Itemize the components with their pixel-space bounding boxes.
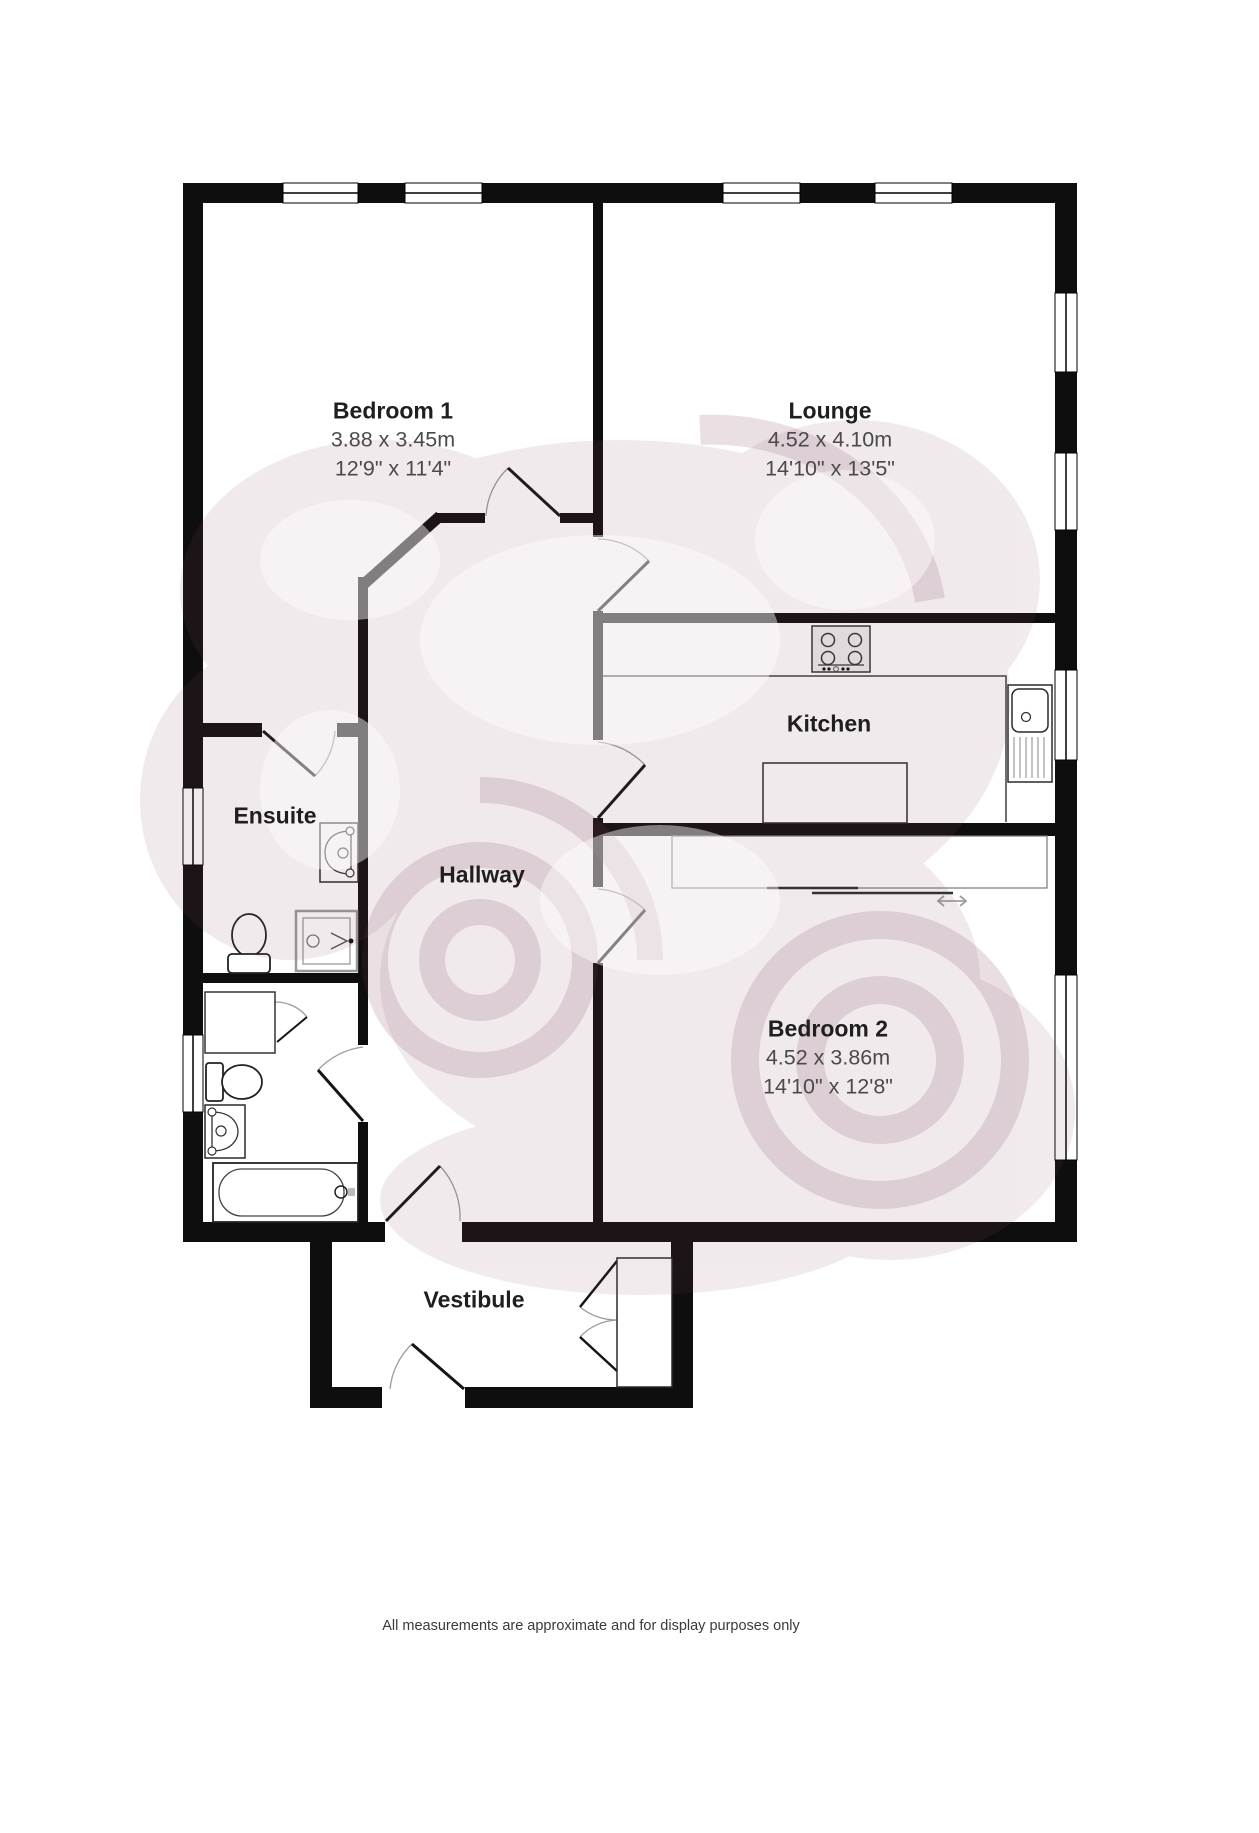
door-arc-bedroom2 bbox=[598, 889, 645, 910]
wall-vestibule-left bbox=[310, 1242, 332, 1408]
sliding-arrow-icon bbox=[938, 896, 966, 906]
room-dimensions-metric: 3.88 x 3.45m bbox=[331, 426, 455, 455]
closet-icon bbox=[617, 1258, 672, 1387]
wall-bottom-left bbox=[203, 1222, 385, 1242]
room-label-lounge: Lounge 4.52 x 4.10m 14'10" x 13'5" bbox=[765, 397, 895, 484]
wall-kitchen-bedroom2 bbox=[593, 823, 1055, 836]
door-leaf-ensuite bbox=[263, 731, 315, 776]
door-leaf-bathroom bbox=[318, 1070, 363, 1121]
room-label-hallway: Hallway bbox=[439, 861, 525, 890]
wall-ensuite-bathroom bbox=[203, 973, 368, 983]
kitchen-sink-icon bbox=[1008, 685, 1052, 782]
wall-bed1-bottom-a bbox=[437, 513, 485, 523]
door-arc-lounge bbox=[598, 539, 649, 561]
door-arc-vestibule bbox=[440, 1166, 460, 1221]
room-label-bedroom-2: Bedroom 2 4.52 x 3.86m 14'10" x 12'8" bbox=[763, 1015, 893, 1102]
door-leaf-closet-bottom bbox=[580, 1337, 617, 1371]
wall-bathroom-right bbox=[358, 1122, 368, 1222]
wall-ensuite-top-a bbox=[203, 723, 262, 737]
bathroom-toilet-icon bbox=[206, 1063, 262, 1101]
windows bbox=[183, 183, 1077, 1160]
room-dimensions-metric: 4.52 x 4.10m bbox=[765, 426, 895, 455]
wall-lounge-kitchen bbox=[593, 613, 1055, 623]
airing-cupboard bbox=[205, 992, 275, 1053]
bath-icon bbox=[213, 1163, 358, 1222]
wall-bottom-right bbox=[462, 1222, 1077, 1242]
door-leaf-closet-top bbox=[580, 1261, 617, 1307]
door-leaf-front-door bbox=[412, 1344, 464, 1389]
wall-bed1-bottom-b bbox=[560, 513, 593, 523]
door-leaf-kitchen bbox=[598, 765, 645, 818]
room-name: Lounge bbox=[765, 397, 895, 426]
room-label-ensuite: Ensuite bbox=[233, 802, 316, 831]
room-name: Hallway bbox=[439, 861, 525, 890]
room-dimensions-metric: 4.52 x 3.86m bbox=[763, 1044, 893, 1073]
door-leaf-bedroom1 bbox=[508, 468, 560, 516]
room-dimensions-imperial: 14'10" x 13'5" bbox=[765, 455, 895, 484]
ensuite-basin-icon bbox=[320, 823, 358, 882]
room-dimensions-imperial: 12'9" x 11'4" bbox=[331, 455, 455, 484]
room-name: Bedroom 2 bbox=[763, 1015, 893, 1044]
room-name: Ensuite bbox=[233, 802, 316, 831]
wall-ensuite-top-b bbox=[337, 723, 358, 737]
wall-spine-1 bbox=[593, 203, 603, 537]
disclaimer-text: All measurements are approximate and for… bbox=[382, 1618, 800, 1634]
room-name: Kitchen bbox=[787, 710, 871, 739]
wall-spine-2 bbox=[593, 611, 603, 740]
walls bbox=[183, 183, 1077, 1408]
wall-spine-4 bbox=[593, 963, 603, 1222]
wall-vestibule-bottom-b bbox=[465, 1387, 693, 1408]
door-arc-front-door bbox=[390, 1344, 412, 1389]
wall-vestibule-bottom-a bbox=[310, 1387, 382, 1408]
room-name: Bedroom 1 bbox=[331, 397, 455, 426]
room-label-kitchen: Kitchen bbox=[787, 710, 871, 739]
door-arc-kitchen bbox=[598, 742, 645, 765]
wall-vestibule-right bbox=[671, 1235, 693, 1408]
kitchen-island-unit bbox=[763, 763, 907, 823]
door-leaf-vestibule bbox=[386, 1166, 440, 1221]
wardrobe-icon bbox=[672, 836, 1047, 906]
floorplan-page: Bedroom 1 3.88 x 3.45m 12'9" x 11'4" Lou… bbox=[0, 0, 1259, 1833]
room-label-vestibule: Vestibule bbox=[424, 1286, 525, 1315]
door-leaf-lounge bbox=[598, 561, 649, 611]
bathroom-basin-icon bbox=[205, 1105, 245, 1158]
wall-bed1-diagonal bbox=[364, 516, 440, 584]
room-name: Vestibule bbox=[424, 1286, 525, 1315]
door-arc-ensuite bbox=[315, 731, 335, 776]
door-arc-bathroom bbox=[318, 1047, 363, 1070]
door-arc-cupboard bbox=[275, 1002, 307, 1017]
room-dimensions-imperial: 14'10" x 12'8" bbox=[763, 1073, 893, 1102]
floorplan-drawing bbox=[0, 0, 1259, 1833]
hob-icon bbox=[812, 626, 870, 672]
door-arc-bedroom1 bbox=[486, 468, 508, 516]
ensuite-toilet-icon bbox=[228, 914, 270, 973]
door-arc-closet-bottom bbox=[580, 1320, 617, 1337]
room-label-bedroom-1: Bedroom 1 3.88 x 3.45m 12'9" x 11'4" bbox=[331, 397, 455, 484]
shower-icon bbox=[296, 911, 357, 971]
door-leaf-bedroom2 bbox=[598, 910, 645, 963]
door-arc-closet-top bbox=[580, 1307, 617, 1320]
door-leaf-cupboard bbox=[277, 1017, 307, 1042]
